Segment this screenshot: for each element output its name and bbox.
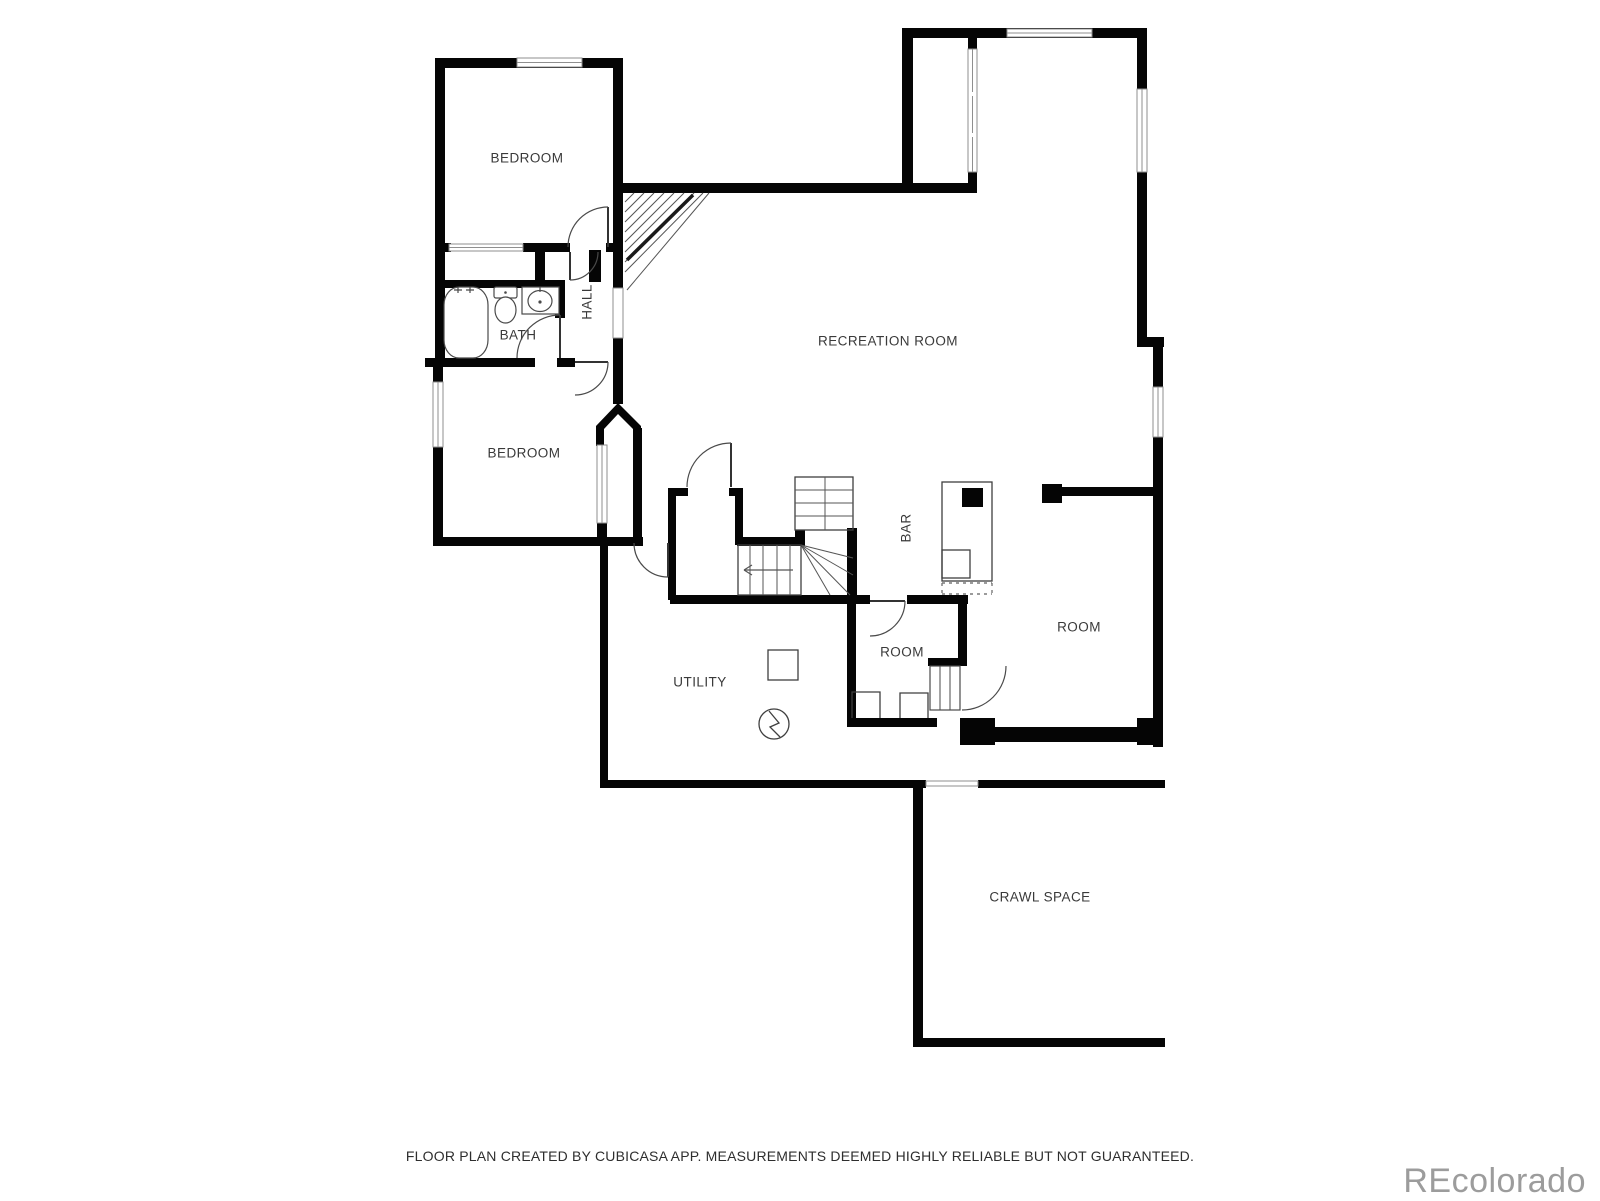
room-label-utility: UTILITY bbox=[673, 675, 726, 690]
toilet-fixture bbox=[494, 287, 517, 323]
room-label-bedroom-upper: BEDROOM bbox=[491, 151, 564, 166]
door-room-small bbox=[870, 601, 905, 636]
sump-pump-symbol bbox=[759, 709, 789, 739]
bar-cabinet bbox=[942, 550, 970, 578]
bar-sink bbox=[962, 488, 983, 507]
room-label-recreation-room: RECREATION ROOM bbox=[818, 334, 958, 349]
room-label-crawl-space: CRAWL SPACE bbox=[989, 890, 1090, 905]
utility-equipment-box bbox=[768, 650, 798, 680]
bath-fixtures bbox=[444, 287, 559, 358]
bar-counter-overhang bbox=[942, 583, 992, 594]
window-hall-recreation bbox=[613, 288, 623, 338]
doors bbox=[517, 207, 1006, 710]
door-vestibule bbox=[687, 443, 731, 487]
bathtub-fixture bbox=[444, 287, 488, 358]
opening-crawl-space bbox=[926, 781, 978, 786]
room-label-bedroom-lower: BEDROOM bbox=[488, 446, 561, 461]
room-label-bath: BATH bbox=[500, 328, 537, 343]
appliance-left bbox=[852, 692, 880, 718]
room-label-bar: BAR bbox=[899, 513, 914, 542]
room-label-room-small: ROOM bbox=[880, 645, 924, 660]
floor-plan-page: BEDROOM BATH HALL RECREATION ROOM BEDROO… bbox=[0, 0, 1600, 1200]
room-label-room-right: ROOM bbox=[1057, 620, 1101, 635]
stairs-direction-arrow bbox=[744, 565, 793, 575]
door-utility bbox=[634, 543, 668, 577]
watermark-recolorado: REcolorado bbox=[1403, 1162, 1586, 1201]
floor-plan-drawing bbox=[0, 0, 1600, 1200]
stairs-winder-top bbox=[625, 193, 709, 290]
door-bedroom-lower bbox=[575, 362, 608, 395]
sink-fixture bbox=[522, 287, 559, 314]
door-room-right bbox=[930, 666, 1006, 710]
door-bedroom-upper bbox=[568, 207, 608, 247]
bar-counter bbox=[942, 482, 992, 594]
room-label-hall: HALL bbox=[580, 284, 595, 320]
footer-disclaimer: FLOOR PLAN CREATED BY CUBICASA APP. MEAS… bbox=[0, 1148, 1600, 1164]
appliance-right bbox=[900, 693, 928, 718]
